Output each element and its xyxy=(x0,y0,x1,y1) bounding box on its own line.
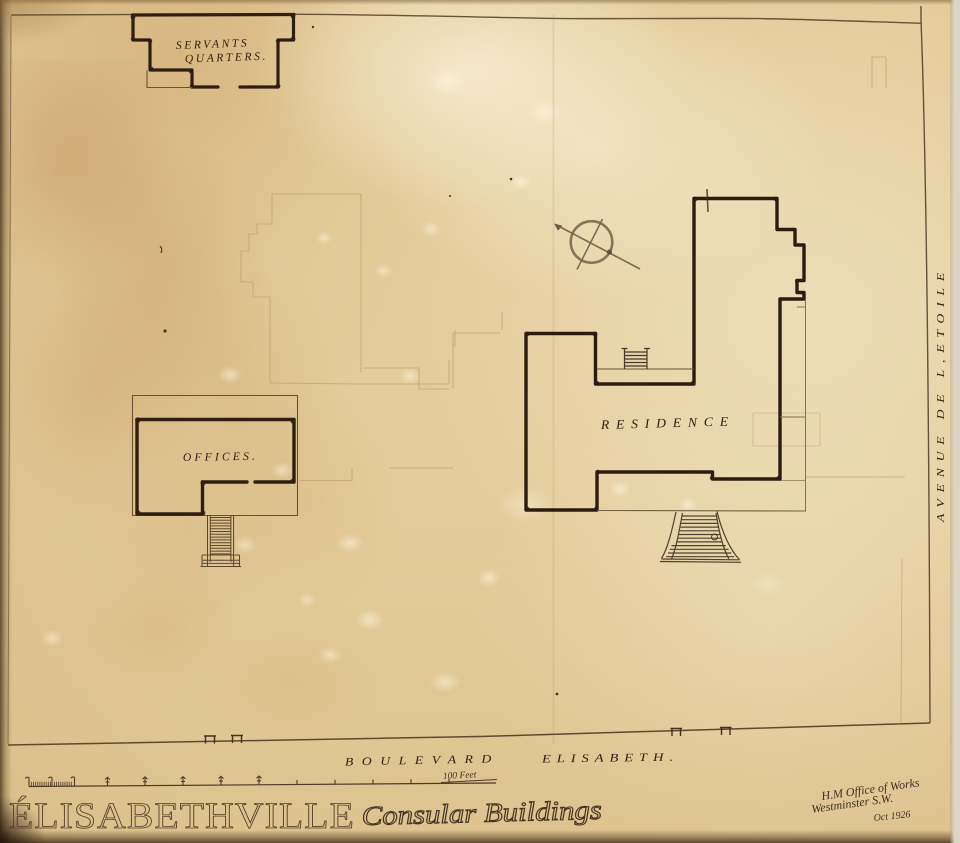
svg-text:AVENUE DE L,ETOILE: AVENUE DE L,ETOILE xyxy=(936,266,947,523)
svg-text:QUARTERS.: QUARTERS. xyxy=(185,51,269,66)
svg-text:RESIDENCE: RESIDENCE xyxy=(600,413,735,432)
svg-text:100 Feet: 100 Feet xyxy=(443,770,477,782)
svg-text:OFFICES.: OFFICES. xyxy=(183,451,258,464)
svg-text:ELISABETH.: ELISABETH. xyxy=(541,752,679,766)
svg-text:ÉLISABETHVILLE: ÉLISABETHVILLE xyxy=(9,795,355,837)
svg-text:Consular Buildings: Consular Buildings xyxy=(361,795,602,831)
svg-text:Oct 1926: Oct 1926 xyxy=(873,809,911,824)
svg-text:SERVANTS: SERVANTS xyxy=(176,37,250,52)
svg-text:BOULEVARD: BOULEVARD xyxy=(345,753,500,768)
